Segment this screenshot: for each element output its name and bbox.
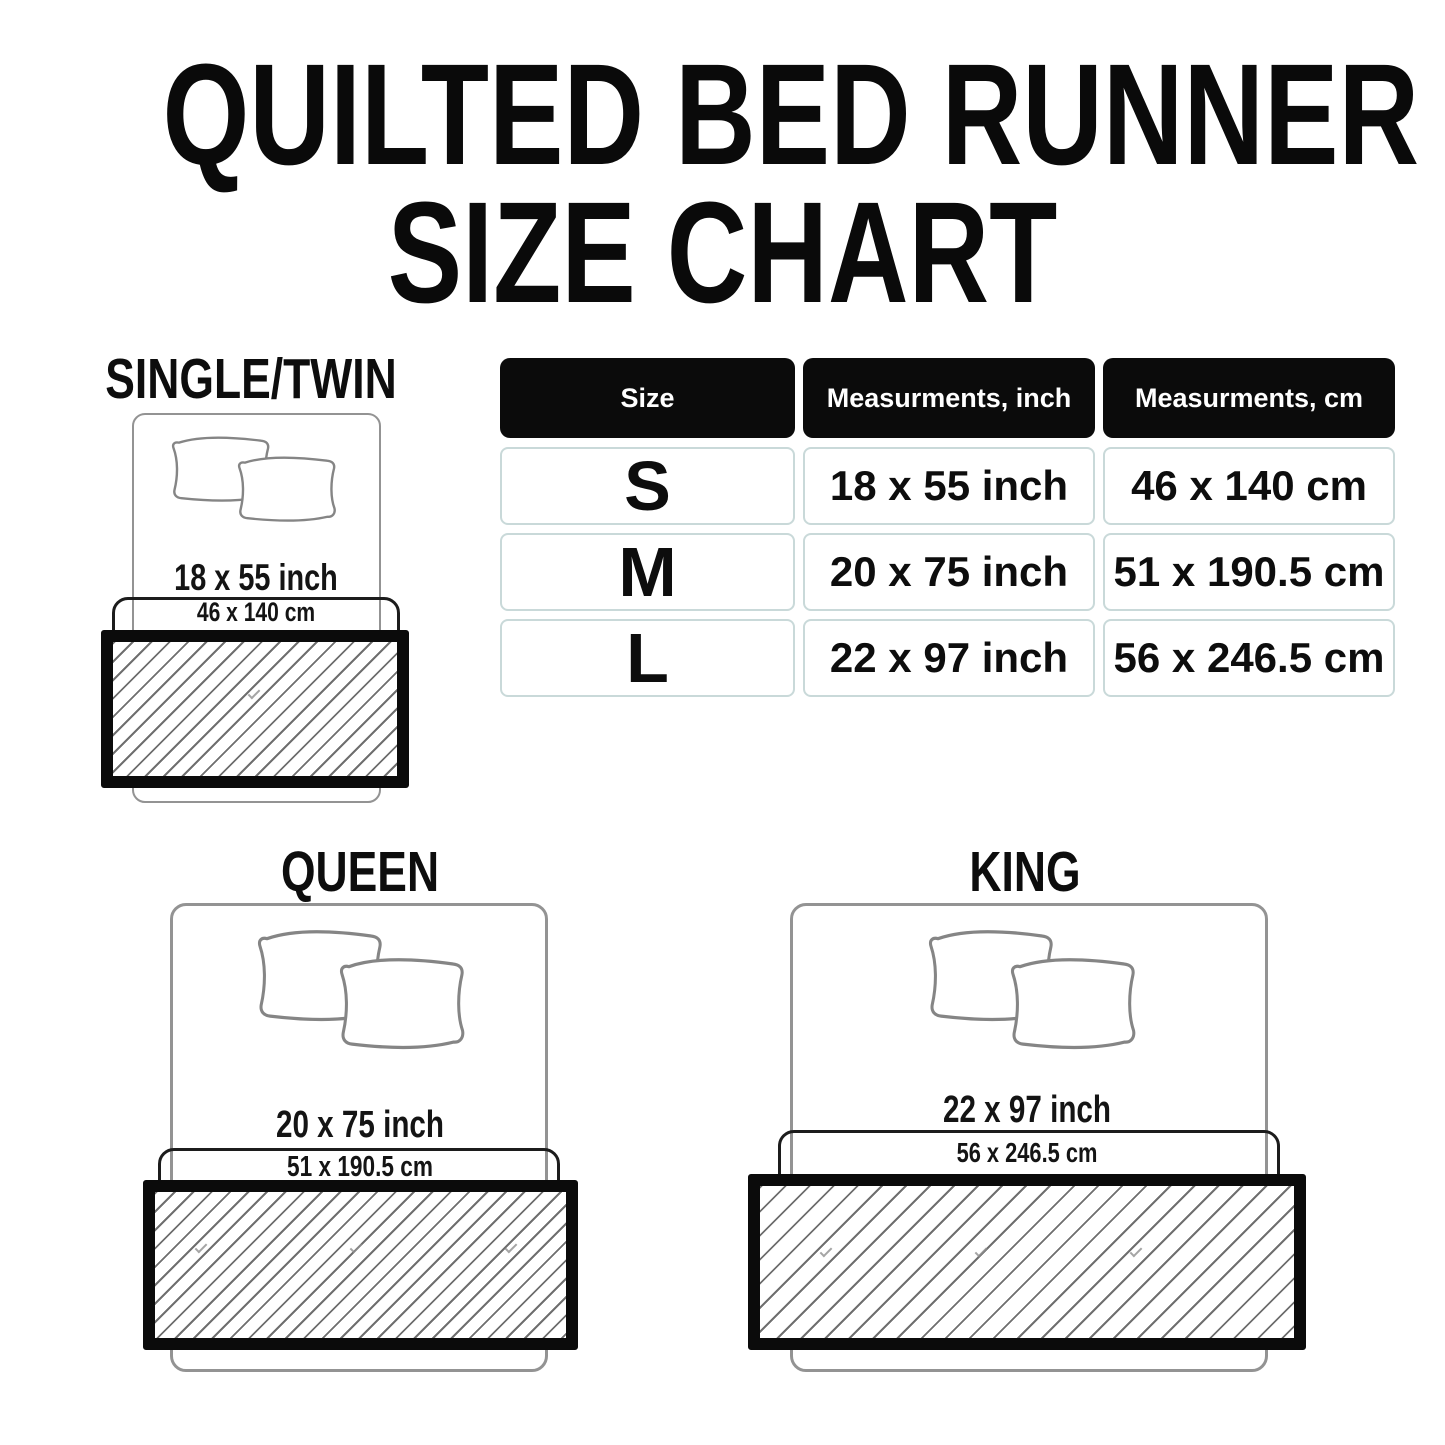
stitch-mark xyxy=(975,1245,988,1258)
king-label: KING xyxy=(877,844,1173,901)
stitch-mark xyxy=(195,1241,208,1254)
page-title-line2: SIZE CHART xyxy=(163,184,1283,322)
queen-runner-swatch xyxy=(143,1180,578,1350)
stitch-mark xyxy=(248,687,261,700)
stitch-mark xyxy=(820,1245,833,1258)
table-header-cm: Measurments, cm xyxy=(1103,358,1395,438)
king-cm-dimension: 56 x 246.5 cm xyxy=(891,1139,1164,1167)
king-runner-swatch xyxy=(748,1174,1306,1350)
page-title: QUILTED BED RUNNER SIZE CHART xyxy=(0,46,1445,322)
table-cell-size-s: S xyxy=(500,447,795,525)
stitch-mark xyxy=(505,1241,518,1254)
table-cell-cm-l: 56 x 246.5 cm xyxy=(1103,619,1395,697)
queen-cm-dimension: 51 x 190.5 cm xyxy=(224,1153,497,1182)
table-cell-cm-s: 46 x 140 cm xyxy=(1103,447,1395,525)
single-twin-runner-swatch xyxy=(101,630,409,788)
table-header-size: Size xyxy=(500,358,795,438)
single-twin-cm-dimension: 46 x 140 cm xyxy=(139,599,373,626)
single-twin-label: SINGLE/TWIN xyxy=(103,351,399,408)
size-chart-page: QUILTED BED RUNNER SIZE CHART SINGLE/TWI… xyxy=(0,0,1445,1445)
stitch-mark xyxy=(350,1241,363,1254)
table-cell-cm-m: 51 x 190.5 cm xyxy=(1103,533,1395,611)
table-cell-size-l: L xyxy=(500,619,795,697)
queen-pillow-front-icon xyxy=(335,949,467,1055)
single-twin-pillow-front-icon xyxy=(234,450,338,526)
table-cell-size-m: M xyxy=(500,533,795,611)
queen-inch-dimension: 20 x 75 inch xyxy=(224,1106,497,1144)
single-twin-inch-dimension: 18 x 55 inch xyxy=(139,559,373,596)
table-header-inch: Measurments, inch xyxy=(803,358,1095,438)
page-title-line1: QUILTED BED RUNNER xyxy=(163,46,1283,184)
queen-label: QUEEN xyxy=(212,844,508,901)
table-cell-inch-l: 22 x 97 inch xyxy=(803,619,1095,697)
king-pillow-front-icon xyxy=(1006,949,1138,1055)
table-cell-inch-m: 20 x 75 inch xyxy=(803,533,1095,611)
king-inch-dimension: 22 x 97 inch xyxy=(891,1091,1164,1129)
table-cell-inch-s: 18 x 55 inch xyxy=(803,447,1095,525)
stitch-mark xyxy=(1130,1245,1143,1258)
